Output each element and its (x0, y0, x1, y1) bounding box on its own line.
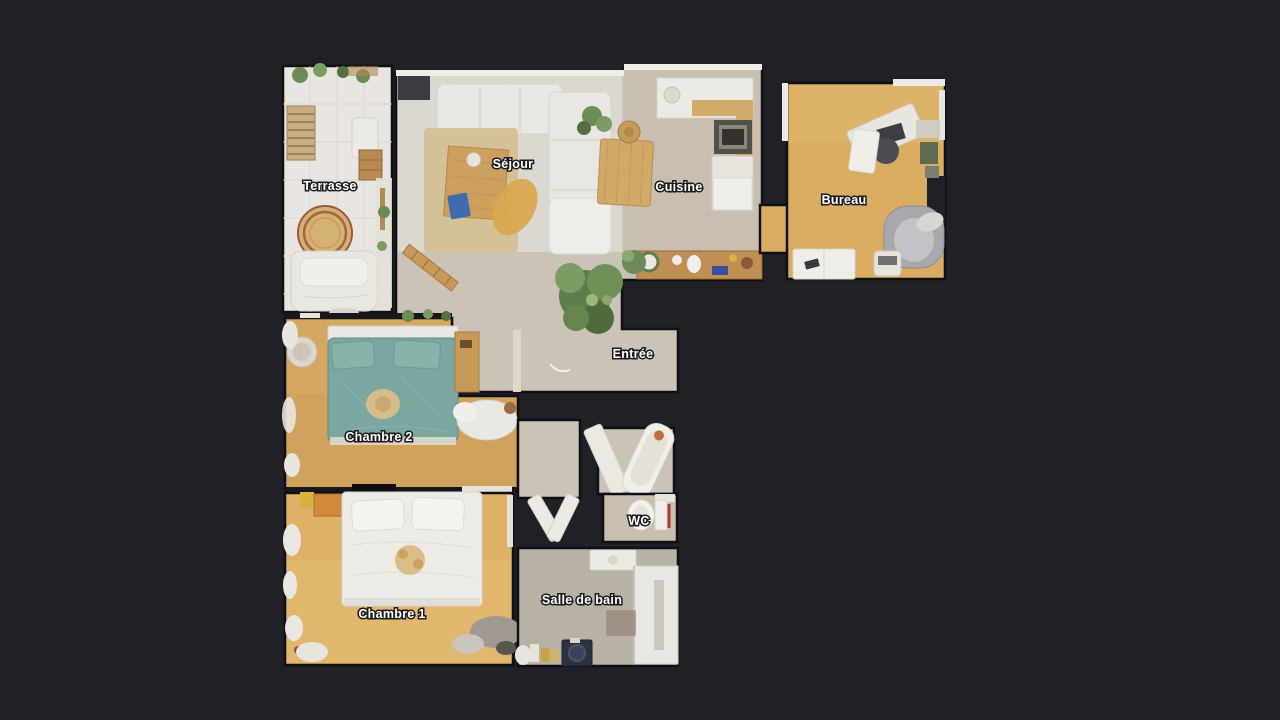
bath-hall-floor[interactable] (518, 420, 580, 498)
room-label-entree[interactable]: Entrée (613, 347, 654, 361)
bath-mat (606, 610, 636, 636)
shower (634, 566, 678, 664)
floor-cushion (296, 642, 328, 662)
terrasse-slatted-bench (287, 106, 315, 160)
bureau-top-wall (893, 79, 945, 86)
terrasse-lounge-chair (291, 251, 377, 311)
fireplace (398, 76, 430, 100)
room-label-cuisine[interactable]: Cuisine (655, 180, 702, 194)
room-label-chambre1[interactable]: Chambre 1 (358, 607, 425, 621)
chambre1-right-wall (507, 495, 513, 547)
wood-stool (618, 121, 640, 143)
blue-book (447, 192, 471, 219)
towel-pile (515, 645, 531, 665)
cuisine-top-wall (624, 64, 762, 70)
dining-table (597, 139, 653, 207)
white-bed (342, 492, 482, 606)
sink-vanity (590, 550, 636, 570)
room-label-chambre2[interactable]: Chambre 2 (345, 430, 412, 444)
room-label-bureau[interactable]: Bureau (822, 193, 867, 207)
stool (874, 251, 901, 276)
potted-plant-small (622, 250, 646, 274)
teal-bed (328, 326, 458, 445)
washing-machine (562, 638, 592, 666)
terrasse-right-wall (376, 178, 392, 308)
terrasse-crate (359, 150, 382, 180)
floorplan-canvas: Terrasse Séjour Cuisine Bureau Entrée Ch… (0, 0, 1280, 720)
room-label-salle-de-bain[interactable]: Salle de bain (542, 593, 622, 607)
bureau-left-wall (782, 83, 788, 141)
room-salle-de-bain[interactable] (515, 548, 678, 666)
passage-kitchen-bureau[interactable] (760, 205, 790, 253)
side-table (848, 128, 880, 173)
sideboard (637, 251, 762, 279)
room-label-terrasse[interactable]: Terrasse (303, 179, 357, 193)
sejour-top-wall (396, 70, 624, 76)
room-label-sejour[interactable]: Séjour (493, 157, 534, 171)
low-cabinet (793, 249, 855, 279)
room-label-wc[interactable]: WC (628, 514, 649, 528)
room-chambre1[interactable] (283, 492, 522, 665)
room-bureau[interactable] (782, 79, 946, 279)
mirror-wall-strip (513, 330, 521, 392)
oven (714, 120, 752, 154)
kitchen-island (712, 156, 753, 210)
